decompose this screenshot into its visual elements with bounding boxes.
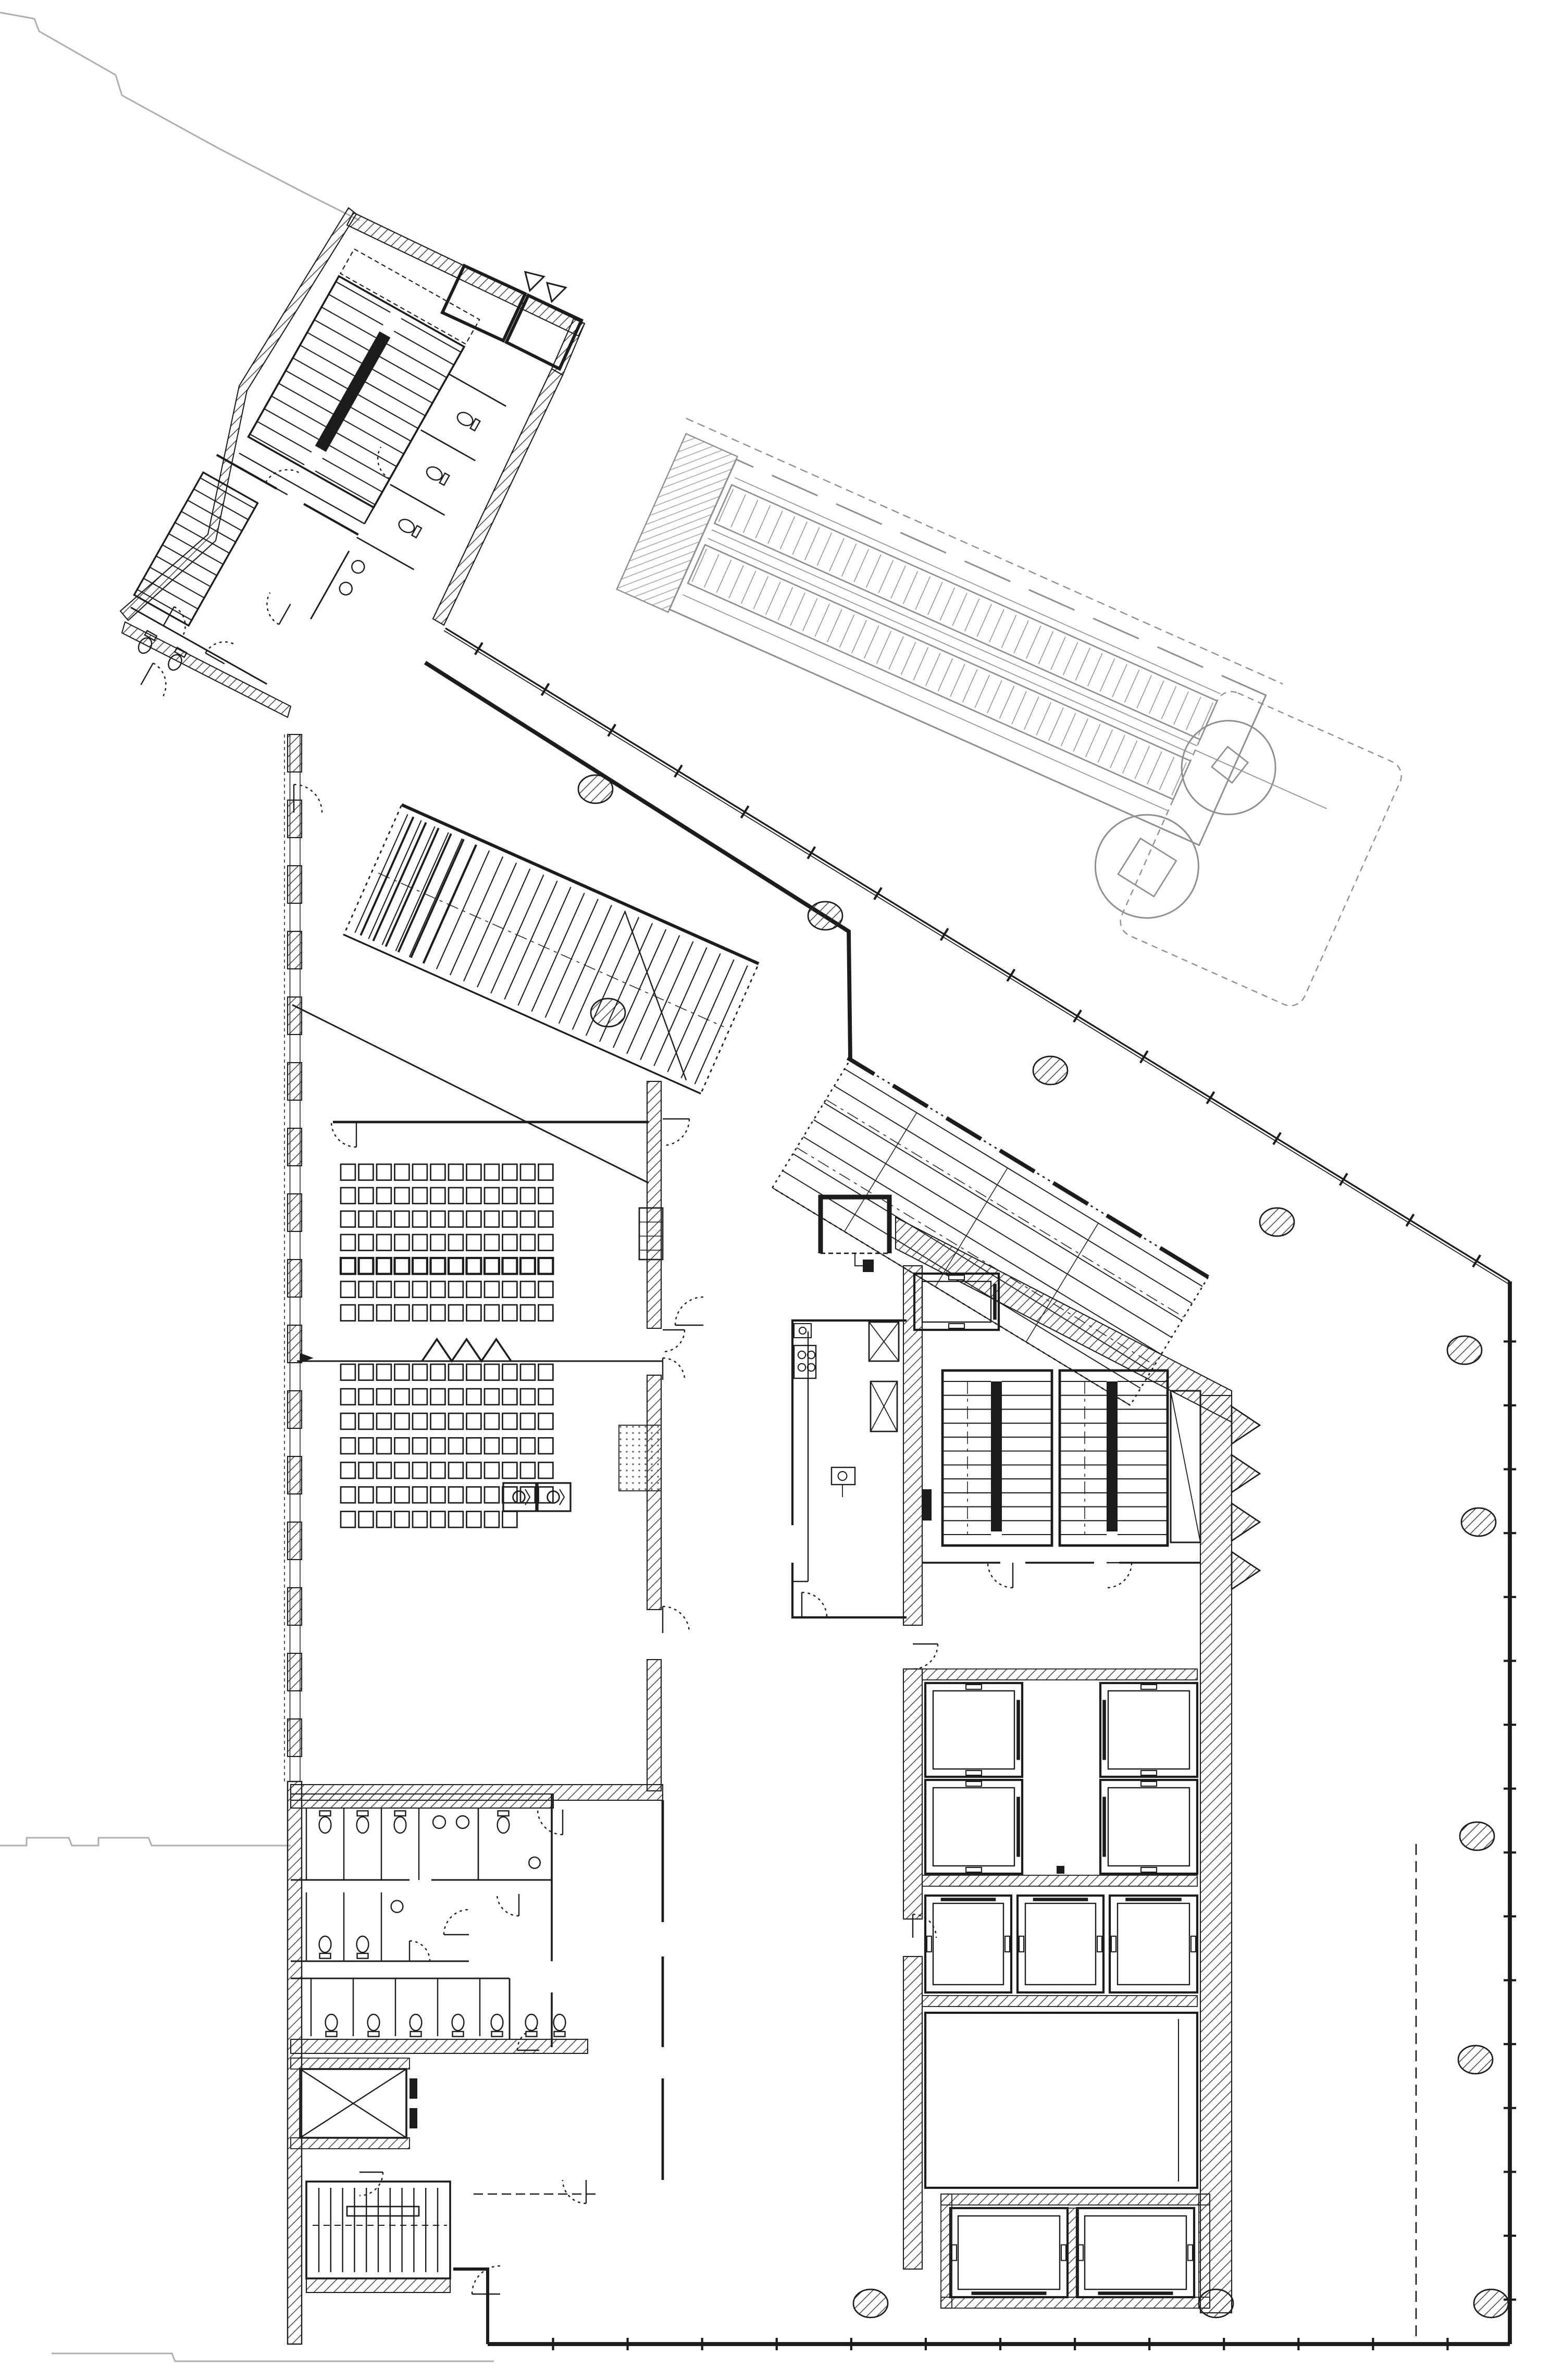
rail [1141,1867,1157,1872]
rail [1019,1936,1024,1952]
core-west-wall-b [903,1669,922,1919]
rail [949,1324,964,1328]
rail [927,1936,932,1952]
rect [1068,2208,1078,2297]
rect [410,2078,417,2099]
floor-plan-canvas [0,0,1563,2380]
auditorium-east-wall-c [647,1660,661,1791]
column [808,902,842,930]
rail [966,1867,982,1872]
column [1458,2046,1493,2074]
core-west-wall-c [903,1957,922,2269]
column [591,999,625,1027]
rail [949,1275,964,1280]
rect [941,2194,952,2308]
rail [1097,1936,1102,1952]
pier [288,1653,302,1691]
rect [922,1669,1197,1680]
rect [306,2278,450,2292]
column [1460,1822,1494,1850]
column [1199,2289,1233,2317]
rail [1061,2245,1066,2261]
pier [288,1391,302,1428]
call-pedestal [1057,1866,1064,1874]
rail [1005,1936,1010,1952]
pier [288,734,302,772]
auditorium-east-wall-b [647,1375,661,1610]
rect [941,2194,1210,2205]
column [1474,2289,1508,2317]
rect [410,2108,417,2128]
projector-device [863,1260,874,1272]
pier [288,1128,302,1166]
rail [966,1685,982,1689]
column [1447,1336,1482,1364]
pier [288,1588,302,1625]
column [1461,1508,1496,1536]
rail [1141,1685,1157,1689]
rect [291,2058,410,2069]
rail [1191,1936,1196,1952]
rail [966,1781,982,1786]
rect [991,1381,1002,1531]
electrical-panel [922,1489,932,1521]
column [853,2289,888,2317]
rect [922,1875,1197,1886]
rail [1111,1936,1116,1952]
column [1260,1208,1294,1236]
pier [288,1325,302,1363]
rail [1141,1771,1157,1775]
auditorium-east-wall-a [647,1081,661,1328]
pier [288,931,302,969]
rail [1078,2245,1083,2261]
core-west-wall-a [903,1266,922,1625]
column [578,775,613,803]
core-east-wall [1200,1395,1232,2313]
pier [288,1194,302,1231]
pier [288,1063,302,1100]
pier [288,1719,302,1756]
rect [922,1996,1197,2007]
rail [966,1771,982,1775]
toilet-north-wall [291,1794,553,1808]
rect [291,2138,410,2149]
floor-plan-svg [0,0,1563,2380]
rect [941,2297,1210,2308]
pier [288,997,302,1035]
pier [288,1260,302,1297]
pier [288,1456,302,1494]
background [0,0,1563,2380]
pier [288,1522,302,1560]
toilet-south-wall [291,2039,588,2053]
rect [1107,1381,1118,1531]
pier [288,800,302,838]
column [1033,1056,1068,1085]
rail [1188,2245,1193,2261]
rail [1141,1781,1157,1786]
rail [952,2245,957,2261]
floor-grille [619,1425,661,1491]
pier [288,866,302,903]
